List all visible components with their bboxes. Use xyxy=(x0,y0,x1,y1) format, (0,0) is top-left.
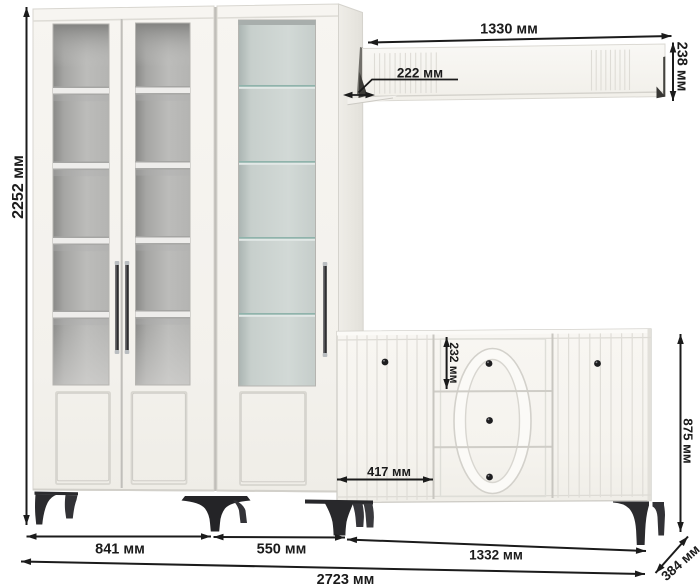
svg-text:2723 мм: 2723 мм xyxy=(317,572,375,588)
svg-text:222 мм: 222 мм xyxy=(397,66,443,81)
svg-text:1332 мм: 1332 мм xyxy=(469,548,523,563)
svg-text:875 мм: 875 мм xyxy=(681,418,696,463)
svg-text:232 мм: 232 мм xyxy=(447,342,461,383)
svg-text:550 мм: 550 мм xyxy=(257,542,307,558)
svg-text:417 мм: 417 мм xyxy=(367,464,411,479)
svg-text:841 мм: 841 мм xyxy=(95,542,145,558)
svg-text:1330 мм: 1330 мм xyxy=(480,22,538,38)
svg-text:2252 мм: 2252 мм xyxy=(10,155,27,219)
svg-text:238 мм: 238 мм xyxy=(674,42,690,92)
